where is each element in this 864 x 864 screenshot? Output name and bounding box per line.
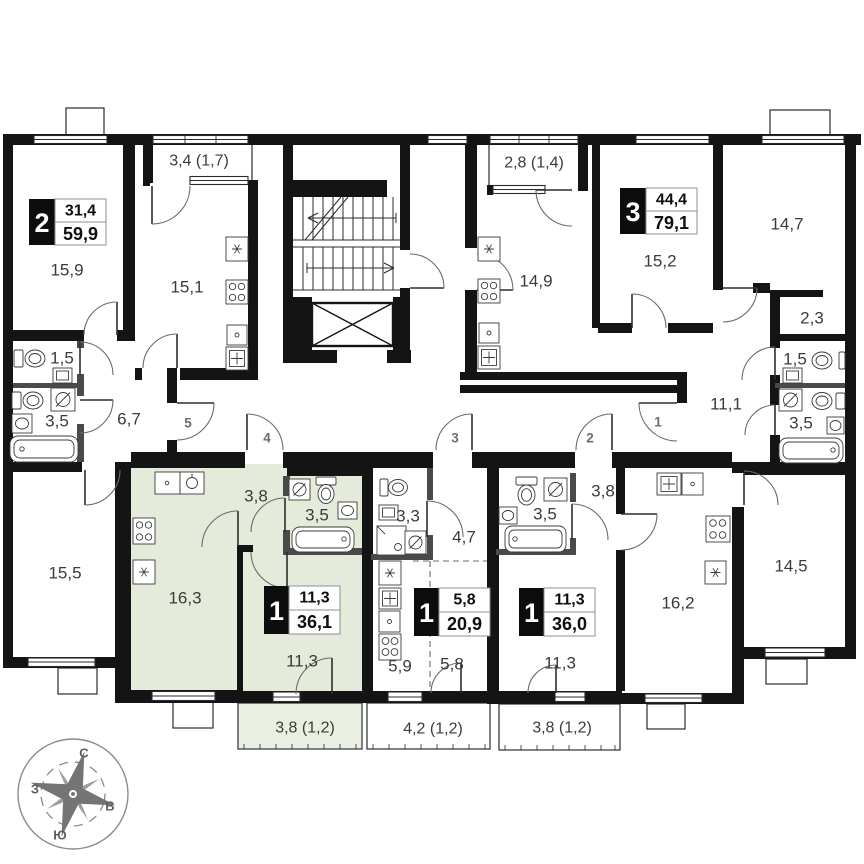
window-bottom-studio — [388, 692, 422, 702]
label-hall-38-green: 3,8 — [244, 487, 268, 506]
badge-apt-1room-green: 1 11,3 36,1 — [264, 586, 340, 634]
entrance-number-1: 1 — [654, 415, 662, 430]
window-top-147 — [762, 136, 844, 144]
badge-total-area: 79,1 — [654, 213, 689, 233]
entrance-numbers: 5 4 3 2 1 — [184, 415, 662, 446]
window-bottom-163 — [152, 692, 215, 701]
label-room-147: 14,7 — [770, 215, 803, 234]
badge-living-area: 31,4 — [65, 203, 96, 220]
badge-rooms-count: 2 — [34, 208, 49, 238]
label-kitchen-149: 14,9 — [519, 272, 552, 291]
window-kitchen-151 — [190, 177, 248, 185]
elevator — [312, 303, 393, 346]
window-bottom-162 — [645, 694, 702, 703]
window-glazing-balcony-tl — [153, 136, 248, 144]
label-hall-47: 4,7 — [452, 528, 476, 547]
label-bath-left: 3,5 — [45, 412, 69, 431]
badge-living-area: 44,4 — [656, 192, 687, 209]
entrance-number-5: 5 — [184, 416, 192, 431]
window-glazing-balcony-tr — [490, 136, 578, 144]
label-kitchen-162: 16,2 — [661, 594, 694, 613]
badge-living-area: 11,3 — [554, 592, 584, 609]
label-room-113-green: 11,3 — [286, 652, 318, 671]
badge-rooms-count: 3 — [625, 197, 640, 227]
floor-plan-page: 3,4 (1,7) 15,9 15,1 2,8 (1,4) 14,9 15,2 … — [0, 0, 864, 864]
entrance-number-2: 2 — [586, 431, 594, 446]
badge-apt-2room: 2 31,4 59,9 — [29, 199, 106, 245]
label-room-159: 15,9 — [50, 261, 83, 280]
badge-studio: 1 5,8 20,9 — [414, 588, 490, 636]
window-top-152 — [636, 136, 709, 144]
label-closet-23: 2,3 — [800, 309, 824, 328]
entrance-number-3: 3 — [451, 431, 459, 446]
door-room-147 — [723, 288, 757, 322]
label-balcony-right: 3,8 (1,2) — [532, 720, 592, 737]
badge-living-area: 5,8 — [453, 592, 475, 609]
badge-apt-1room-center: 1 11,3 36,0 — [519, 588, 595, 636]
label-zone-59: 5,9 — [388, 657, 412, 676]
compass-north-label: С — [79, 746, 89, 761]
ledge-top-right — [770, 110, 830, 135]
window-bottom-113c — [555, 692, 585, 702]
door-bath-left — [80, 400, 113, 433]
badge-total-area: 36,0 — [552, 614, 587, 634]
badge-rooms-count: 1 — [419, 598, 434, 628]
label-hall-67: 6,7 — [117, 410, 141, 429]
door-balcony-tl — [152, 186, 190, 224]
kitchen-151-appliances — [226, 237, 248, 370]
window-bottom-145 — [765, 648, 825, 657]
door-entrance-5 — [177, 403, 214, 440]
door-room-152 — [632, 294, 666, 328]
entrance-number-4: 4 — [263, 431, 271, 446]
ledge-top-left — [66, 108, 104, 135]
badge-total-area: 59,9 — [63, 224, 98, 244]
door-room-145 — [744, 471, 778, 505]
window-bottom-155 — [28, 658, 95, 667]
staircase — [293, 197, 400, 290]
door-room-159 — [84, 302, 117, 335]
door-wc-left — [80, 342, 113, 375]
kitchen-149-appliances — [478, 237, 500, 369]
label-balcony-tl: 3,4 (1,7) — [169, 153, 229, 170]
ledge-bottom-163 — [173, 702, 213, 728]
label-kitchen-151: 15,1 — [170, 278, 203, 297]
label-room-145: 14,5 — [774, 557, 807, 576]
ledge-bottom-145 — [766, 659, 807, 684]
label-bath-35-green: 3,5 — [305, 506, 329, 525]
label-kitchen-163: 16,3 — [168, 589, 201, 608]
stair-arrow-down — [307, 263, 394, 273]
label-zone-58: 5,8 — [440, 655, 464, 674]
label-balcony-tr: 2,8 (1,4) — [504, 155, 564, 172]
label-wc-left: 1,5 — [50, 349, 74, 368]
badge-apt-3room: 3 44,4 79,1 — [620, 188, 697, 234]
ledge-bottom-155 — [58, 668, 97, 694]
label-bath-33: 3,3 — [396, 507, 420, 526]
window-top-stairs — [428, 136, 467, 144]
badge-rooms-count: 1 — [269, 596, 284, 626]
compass-south-label: Ю — [53, 828, 66, 843]
label-room-152: 15,2 — [643, 252, 676, 271]
compass-west-label: З — [31, 782, 39, 797]
compass-rose: С В Ю З — [18, 739, 128, 849]
ledge-bottom-162 — [647, 704, 685, 729]
badge-total-area: 20,9 — [447, 614, 482, 634]
label-bath-35-center: 3,5 — [533, 505, 557, 524]
floor-plan-drawing: 3,4 (1,7) 15,9 15,1 2,8 (1,4) 14,9 15,2 … — [0, 0, 864, 864]
label-balcony-mid: 4,2 (1,2) — [403, 721, 463, 738]
label-wc-right: 1,5 — [783, 350, 807, 369]
label-room-113-center: 11,3 — [544, 654, 576, 673]
label-hall-111: 11,1 — [710, 395, 742, 414]
badge-living-area: 11,3 — [299, 590, 329, 607]
window-top-159 — [34, 136, 107, 144]
badge-total-area: 36,1 — [297, 612, 332, 632]
compass-east-label: В — [105, 799, 114, 814]
door-bath-right — [745, 405, 775, 435]
door-stairwell — [410, 254, 444, 288]
door-balcony-tr — [536, 190, 572, 226]
door-center-bath — [572, 504, 608, 540]
door-kitchen-151 — [143, 334, 177, 368]
door-center-kitchen — [621, 514, 657, 550]
kitchen-162-appliances — [657, 473, 730, 584]
label-bath-right: 3,5 — [789, 414, 813, 433]
label-hall-38-center: 3,8 — [591, 482, 615, 501]
door-entrance-2 — [576, 414, 612, 450]
label-room-155: 15,5 — [48, 564, 81, 583]
kitchenette-59-appliances — [379, 561, 401, 660]
door-room-155 — [85, 470, 120, 505]
label-balcony-green: 3,8 (1,2) — [275, 720, 335, 737]
badge-rooms-count: 1 — [524, 598, 539, 628]
